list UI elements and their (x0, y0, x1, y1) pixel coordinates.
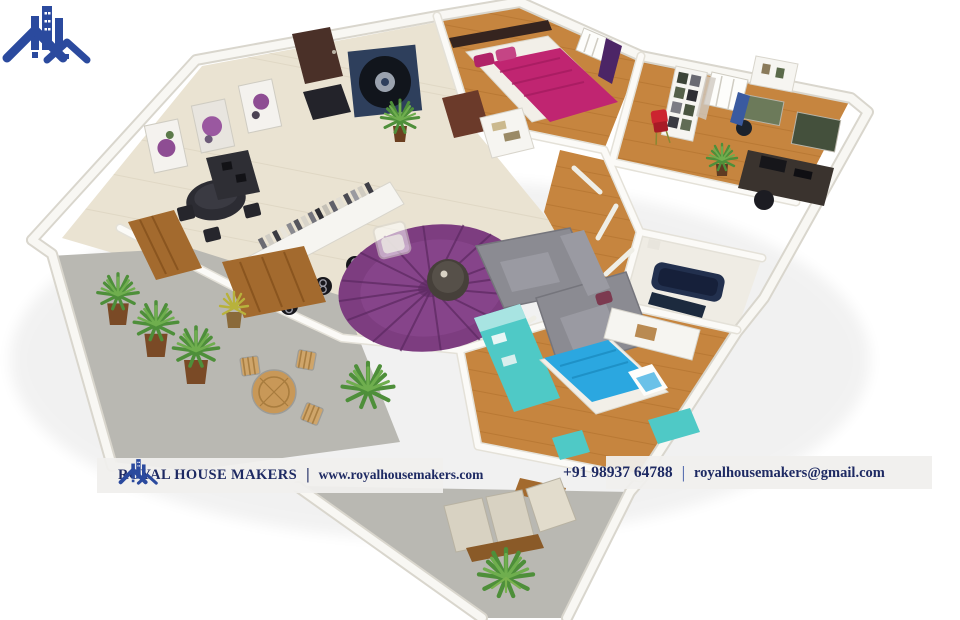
terrace-chair (296, 350, 317, 371)
banner-right-content: +91 98937 64788 | royalhousemakers@gmail… (563, 458, 885, 488)
brand-separator: | (306, 466, 310, 484)
table-decor (441, 271, 448, 278)
brand-logo-center (0, 0, 92, 70)
brand-logo-icon (118, 455, 158, 489)
stove-burner (221, 161, 232, 171)
phone-number: +91 98937 64788 (563, 464, 673, 482)
terrace-chair (240, 356, 260, 376)
banner-left-content: ROYAL HOUSE MAKERS | www.royalhousemaker… (118, 455, 483, 495)
floorplan-3d-render (0, 0, 960, 620)
study-room (650, 56, 840, 210)
contact-separator: | (682, 463, 685, 483)
email-address: royalhousemakers@gmail.com (694, 465, 885, 482)
desk-chair (754, 190, 774, 210)
brand-website: www.royalhousemakers.com (319, 467, 484, 483)
royal-house-makers-floorplan-ad: ROYAL HOUSE MAKERS | www.royalhousemaker… (0, 0, 960, 620)
stove-burner (235, 173, 246, 183)
acrylic-chair (373, 221, 412, 260)
